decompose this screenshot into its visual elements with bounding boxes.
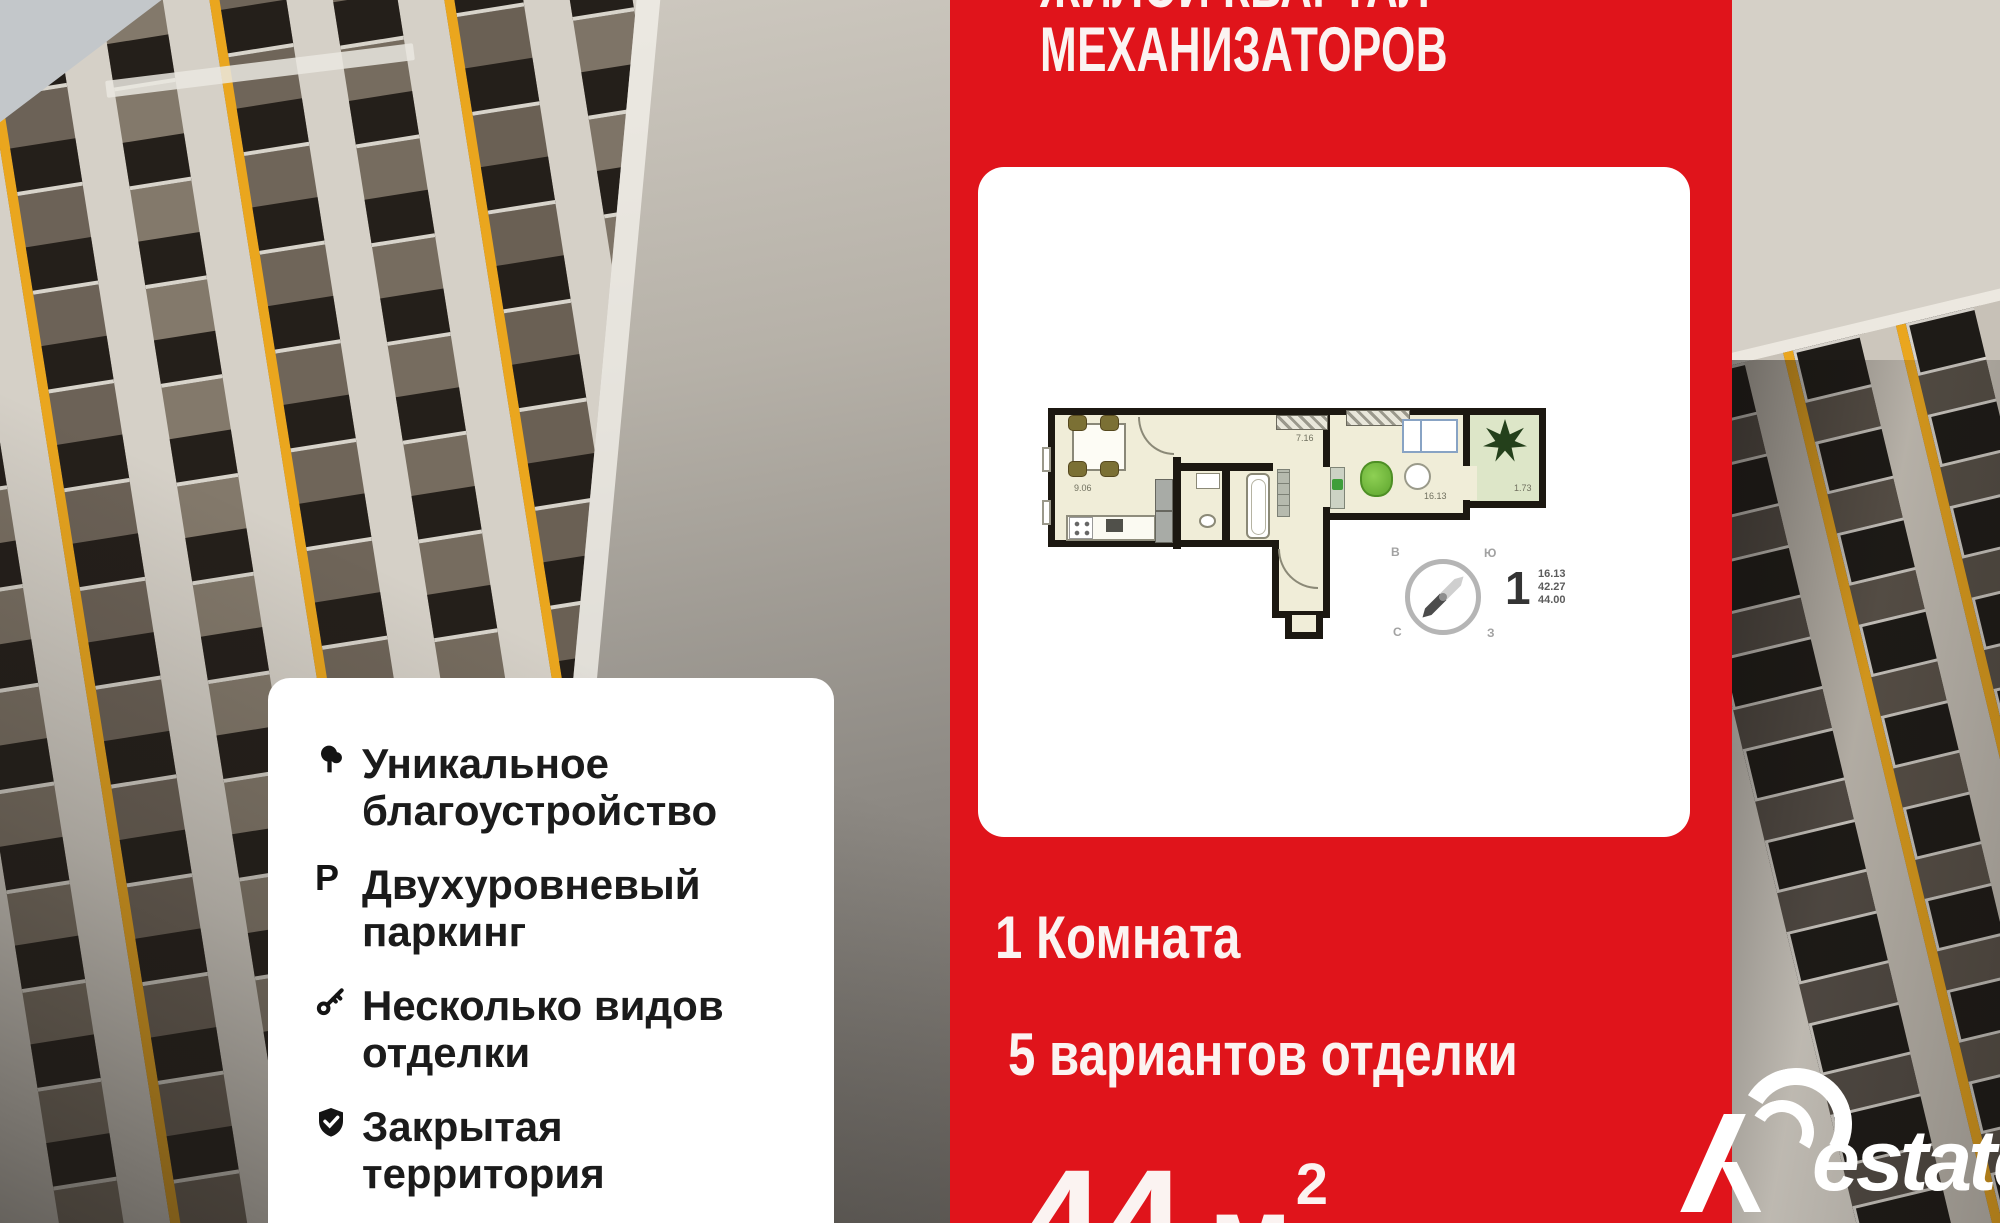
promo-panel: ЖИЛОЙ КВАРТАЛ МЕХАНИЗАТОРОВ [950, 0, 1732, 1223]
chair [1100, 461, 1119, 477]
complex-name: ЖИЛОЙ КВАРТАЛ МЕХАНИЗАТОРОВ [1040, 0, 1448, 82]
floor-plan-card: 9.06 7.16 16.13 1.73 В Ю С З 1 16.13 42.… [978, 167, 1690, 837]
area-spec-value: 42.27 [1538, 581, 1566, 594]
finish-options-text: 5 вариантов отделки [1008, 1020, 1518, 1089]
features-card: Уникальное благоустройство Р Двухуровнев… [268, 678, 834, 1223]
washbasin [1199, 514, 1216, 528]
parking-icon: Р [315, 861, 349, 895]
restate-logo: estate [1692, 1072, 2000, 1223]
fridge [1155, 479, 1173, 543]
area-spec-value: 44.00 [1538, 594, 1566, 607]
room-count: 1 [1505, 561, 1531, 615]
logo-wordmark: estate [1812, 1112, 2000, 1211]
feature-item: Р Двухуровневый паркинг [315, 861, 804, 955]
feature-item: Несколько видов отделки [315, 982, 804, 1076]
compass-label-sw: С [1393, 625, 1402, 639]
vent-hatch [1346, 410, 1410, 426]
compass-center [1439, 593, 1447, 601]
bathroom-divider-wall [1222, 467, 1230, 547]
feature-label: Закрытая территория [362, 1103, 762, 1197]
chair [1068, 461, 1087, 477]
complex-name-line2: МЕХАНИЗАТОРОВ [1040, 18, 1448, 82]
computer [1332, 479, 1343, 490]
key-icon [315, 985, 349, 1022]
area-unit: м [1209, 1173, 1292, 1223]
green-armchair [1360, 461, 1393, 497]
bathroom-cabinet [1196, 473, 1220, 489]
area-spec-list: 16.13 42.27 44.00 [1538, 568, 1566, 607]
logo-r-leg [1720, 1162, 1761, 1212]
door-opening-hall [1279, 539, 1323, 549]
feature-label: Уникальное благоустройство [362, 740, 762, 834]
kitchen-area-label: 9.06 [1074, 483, 1092, 493]
total-area-text: 44м2 [1020, 1136, 1328, 1223]
living-area-label: 16.13 [1424, 491, 1447, 501]
bathtub [1246, 473, 1270, 539]
chair [1068, 415, 1087, 431]
window-stub-lower [1042, 500, 1051, 525]
tree-icon [315, 743, 349, 780]
balcony-area-label: 1.73 [1514, 483, 1532, 493]
rooms-count-text: 1 Комната [995, 903, 1240, 972]
area-spec-value: 16.13 [1538, 568, 1566, 581]
bed [1402, 419, 1458, 453]
area-value: 44 [1020, 1138, 1183, 1223]
sink [1106, 519, 1123, 532]
compass-label-ne: Ю [1484, 546, 1496, 560]
stove [1069, 517, 1093, 539]
chair [1100, 415, 1119, 431]
entry-hall-foot [1285, 615, 1323, 639]
feature-label: Двухуровневый паркинг [362, 861, 762, 955]
real-estate-poster: ЖИЛОЙ КВАРТАЛ МЕХАНИЗАТОРОВ [0, 0, 2000, 1223]
compass-label-nw: В [1391, 545, 1400, 559]
feature-label: Несколько видов отделки [362, 982, 762, 1076]
feature-item: Уникальное благоустройство [315, 740, 804, 834]
door-opening-balcony [1462, 466, 1477, 500]
wardrobe-hatch [1276, 415, 1328, 430]
window-stub-upper [1042, 447, 1051, 472]
hall-shelf [1277, 469, 1290, 517]
feature-item: Закрытая территория [315, 1103, 804, 1197]
compass-icon [1405, 559, 1481, 635]
kitchen-divider-wall [1173, 457, 1181, 549]
hall-area-label: 7.16 [1296, 433, 1314, 443]
area-superscript: 2 [1296, 1152, 1328, 1217]
right-building-photo [1732, 0, 2000, 1223]
round-table [1404, 463, 1431, 490]
compass-label-se: З [1487, 626, 1495, 640]
shield-icon [315, 1106, 349, 1143]
